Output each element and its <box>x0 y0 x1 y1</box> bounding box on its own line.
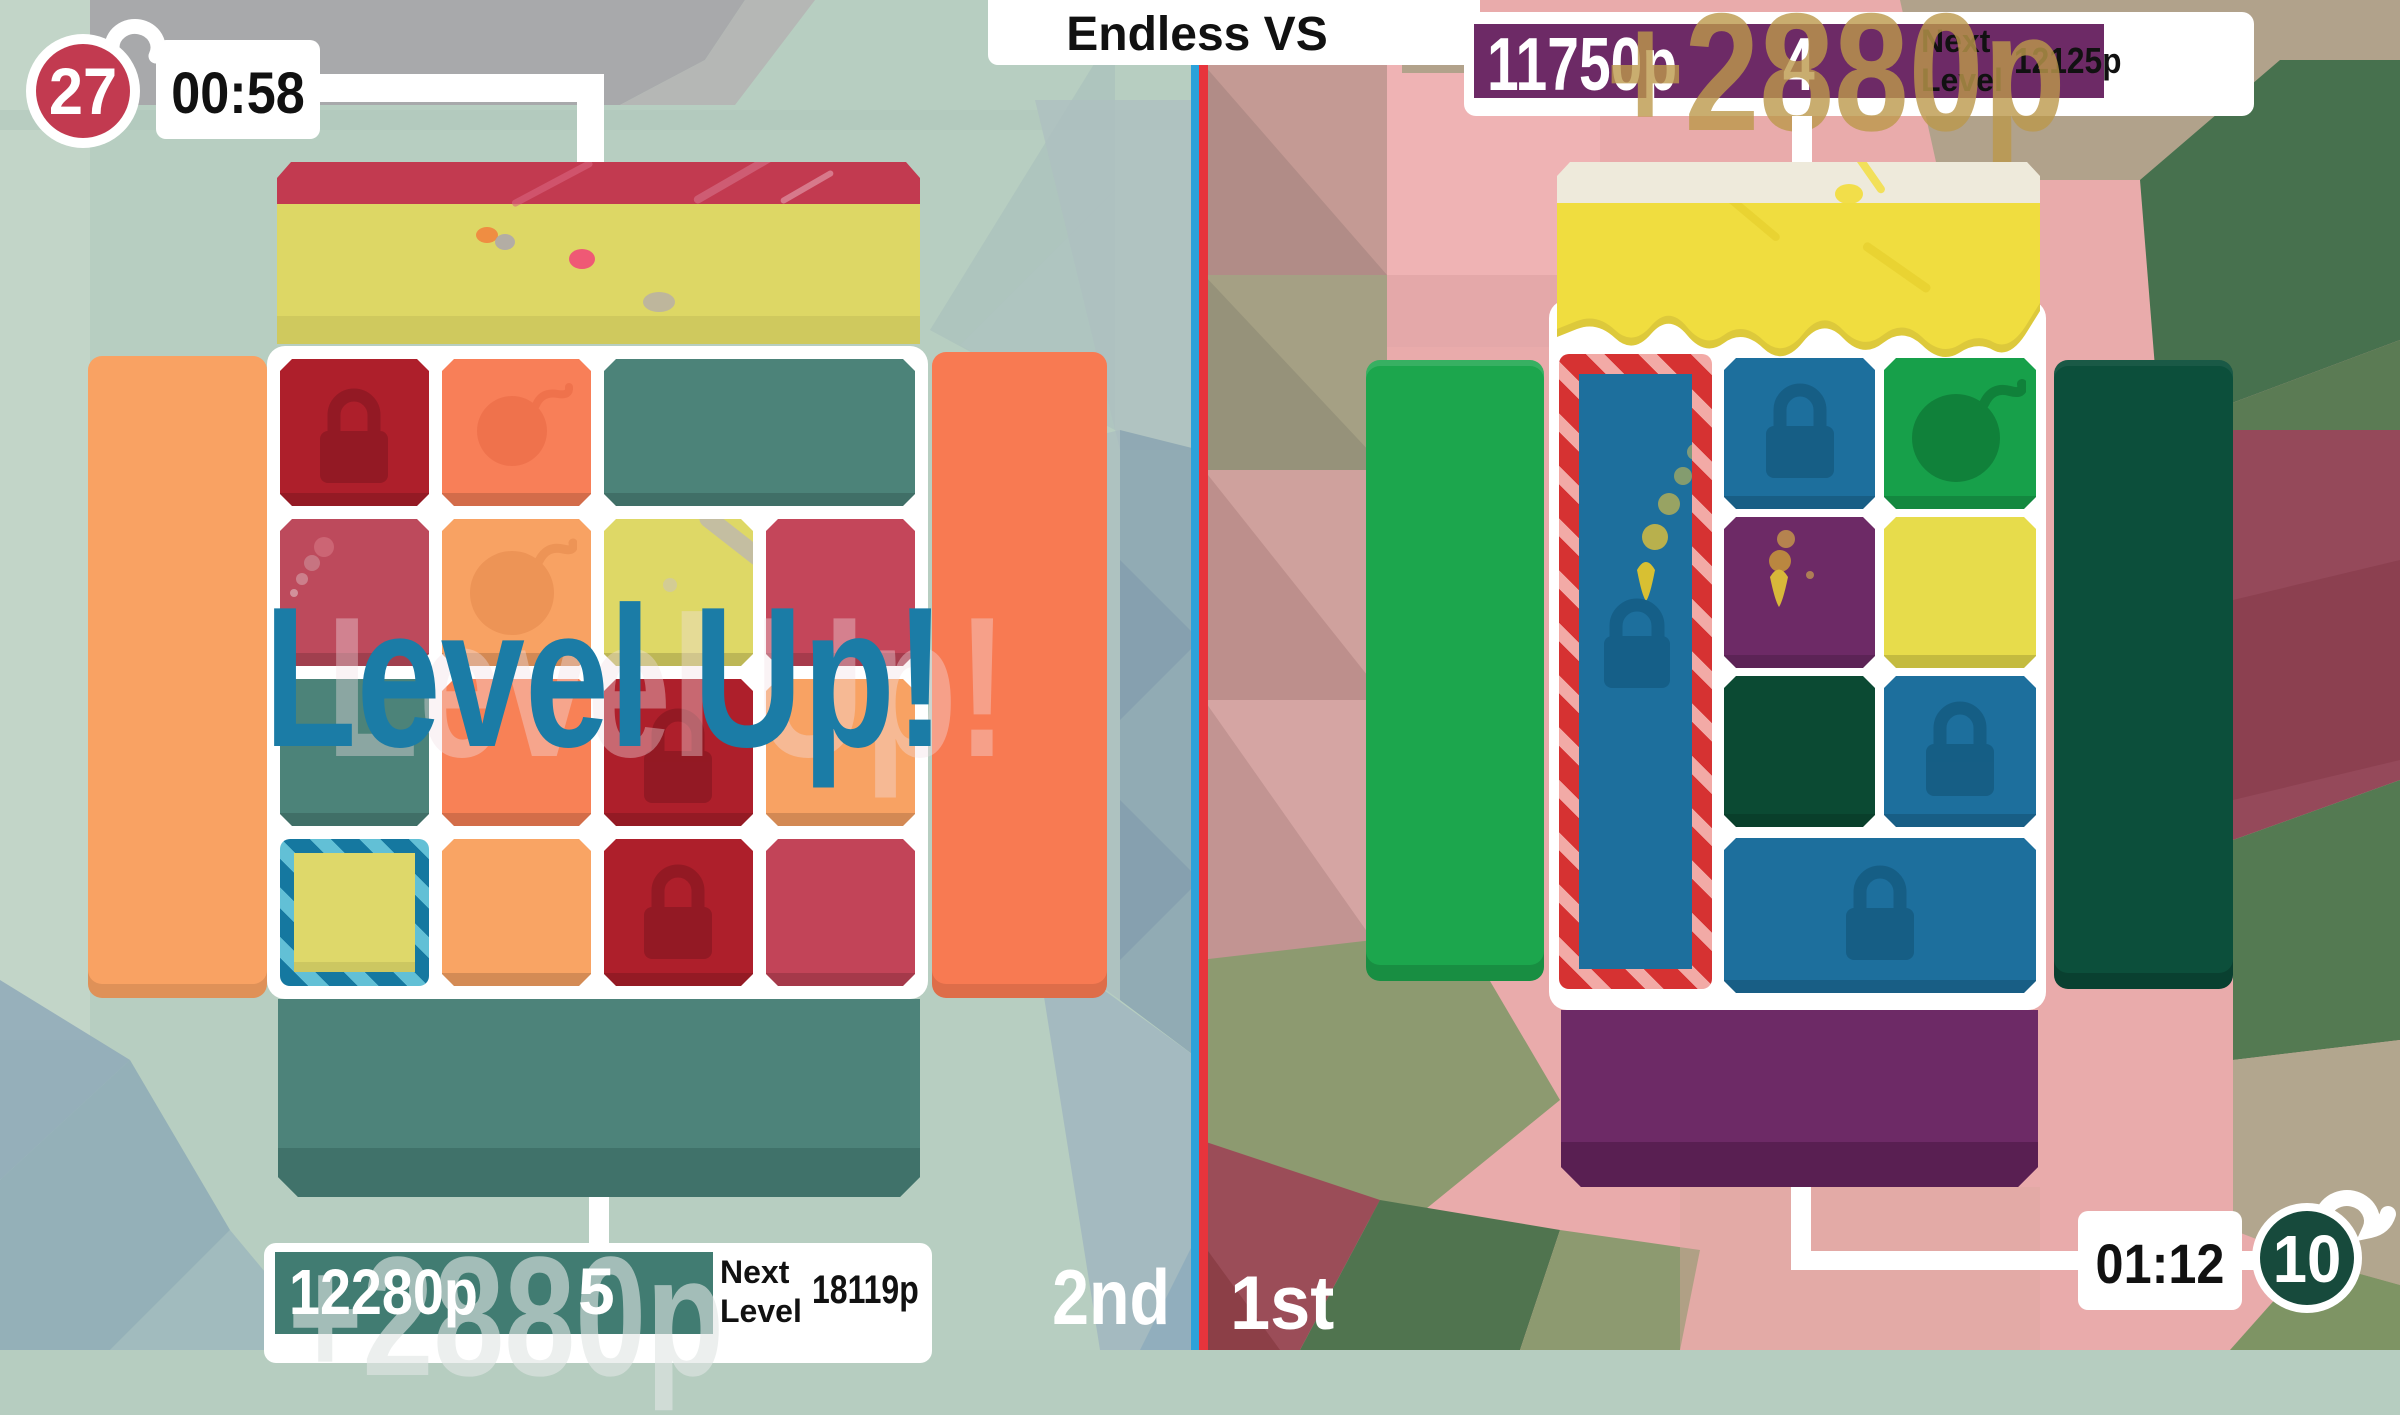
svg-text:27: 27 <box>49 54 117 129</box>
svg-text:10: 10 <box>2273 1222 2342 1297</box>
